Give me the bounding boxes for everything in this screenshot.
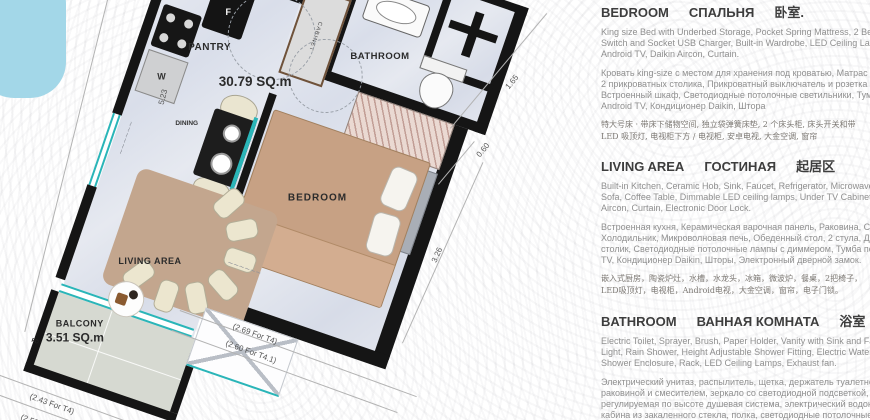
- decorative-blue-shape: [0, 0, 66, 98]
- hob-burners: [165, 12, 176, 23]
- body-line: 嵌入式厨房，陶瓷炉灶，水槽，水龙头，冰箱，微波炉，餐桌，2把椅子，: [601, 273, 870, 285]
- body-line: Android TV, Кондиционер Daikin, Штора: [601, 101, 870, 112]
- body-line: Электрический унитаз, распылитель, щетка…: [601, 377, 870, 388]
- floor-plan-page: W F CABINET: [0, 0, 870, 420]
- body-line: LED吸顶灯，电视柜，Android电视，大金空调，窗帘，电子门锁。: [601, 285, 870, 297]
- body-line: Shower Enclosure, Rack, LED Ceiling Lamp…: [601, 358, 870, 369]
- bathroom-label: BATHROOM: [350, 51, 409, 62]
- living-area-label: LIVING AREA: [118, 256, 181, 266]
- heading-zh: 起居区: [796, 159, 835, 174]
- washer-label: W: [157, 72, 166, 82]
- dining-label: DINING: [175, 120, 198, 127]
- section-heading: BEDROOMСПАЛЬНЯ卧室.: [601, 2, 870, 21]
- fridge-label: F: [226, 7, 232, 17]
- body-line: Aircon, Curtain, Electronic Door Lock.: [601, 203, 870, 214]
- body-line: раковиной и смесителем, зеркало со свето…: [601, 388, 870, 399]
- coffee-saucer: [128, 289, 139, 300]
- body-line: Android TV, Daikin Aircon, Curtain.: [601, 49, 870, 60]
- body-line: Electric Toilet, Sprayer, Brush, Paper H…: [601, 336, 870, 347]
- heading-zh: 卧室.: [774, 5, 804, 20]
- body-line: Встроенный шкаф, Светодиодные потолочные…: [601, 90, 870, 101]
- body-line: Sofa, Coffee Table, Dimmable LED ceiling…: [601, 192, 870, 203]
- body-line: LED 吸顶灯, 电视柜下方 / 电视柜, 安卓电视, 大金空调, 窗帘: [601, 131, 870, 143]
- body-line: Кровать king-size с местом для хранения …: [601, 68, 870, 79]
- body-line: Light, Rain Shower, Height Adjustable Sh…: [601, 347, 870, 358]
- heading-ru: СПАЛЬНЯ: [689, 5, 754, 20]
- heading-en: LIVING AREA: [601, 159, 684, 174]
- section-heading: LIVING AREAГОСТИНАЯ起居区: [601, 156, 870, 175]
- body-line: Switch and Socket USB Charger, Built-in …: [601, 38, 870, 49]
- body-line: 2 прикроватных столика, Прикроватный вык…: [601, 79, 870, 90]
- heading-ru: ГОСТИНАЯ: [704, 159, 776, 174]
- body-line: столик, Светодиодные потолочные лампы с …: [601, 244, 870, 255]
- bedroom-label: BEDROOM: [288, 192, 347, 203]
- coffee-cup: [114, 292, 128, 306]
- body-line: регулируемая по высоте душевая система, …: [601, 399, 870, 410]
- body-line: Холодильник, Микроволновая печь, Обеденн…: [601, 233, 870, 244]
- section-bedroom: BEDROOMСПАЛЬНЯ卧室. King size Bed with Und…: [601, 2, 870, 143]
- sink-basin: [373, 0, 419, 29]
- body-line: 特大号床 · 带床下储物空间, 独立袋弹簧床垫, 2 个床头柜, 床头开关和带: [601, 119, 870, 131]
- balcony-area-label: 3.51 SQ.m: [46, 331, 104, 345]
- section-heading: BATHROOMВАННАЯ КОМНАТА浴室: [601, 311, 870, 330]
- body-line: King size Bed with Underbed Storage, Poc…: [601, 27, 870, 38]
- body-line: TV, Кондиционер Daikin, Шторы, Электронн…: [601, 255, 870, 266]
- heading-ru: ВАННАЯ КОМНАТА: [697, 314, 820, 329]
- body-line: Built-in Kitchen, Ceramic Hob, Sink, Fau…: [601, 181, 870, 192]
- heading-zh: 浴室: [839, 314, 865, 329]
- body-line: кабина из закаленного стекла, полка, све…: [601, 410, 870, 420]
- unit-area-label: 30.79 SQ.m: [219, 74, 292, 89]
- body-line: Встроенная кухня, Керамическая варочная …: [601, 222, 870, 233]
- dining-plates: [220, 122, 243, 145]
- heading-en: BEDROOM: [601, 5, 669, 20]
- section-living-area: LIVING AREAГОСТИНАЯ起居区 Built-in Kitchen,…: [601, 156, 870, 297]
- section-bathroom: BATHROOMВАННАЯ КОМНАТА浴室 Electric Toilet…: [601, 311, 870, 420]
- pantry-label: PANTRY: [188, 42, 231, 53]
- balcony-label: BALCONY: [56, 318, 104, 328]
- heading-en: BATHROOM: [601, 314, 677, 329]
